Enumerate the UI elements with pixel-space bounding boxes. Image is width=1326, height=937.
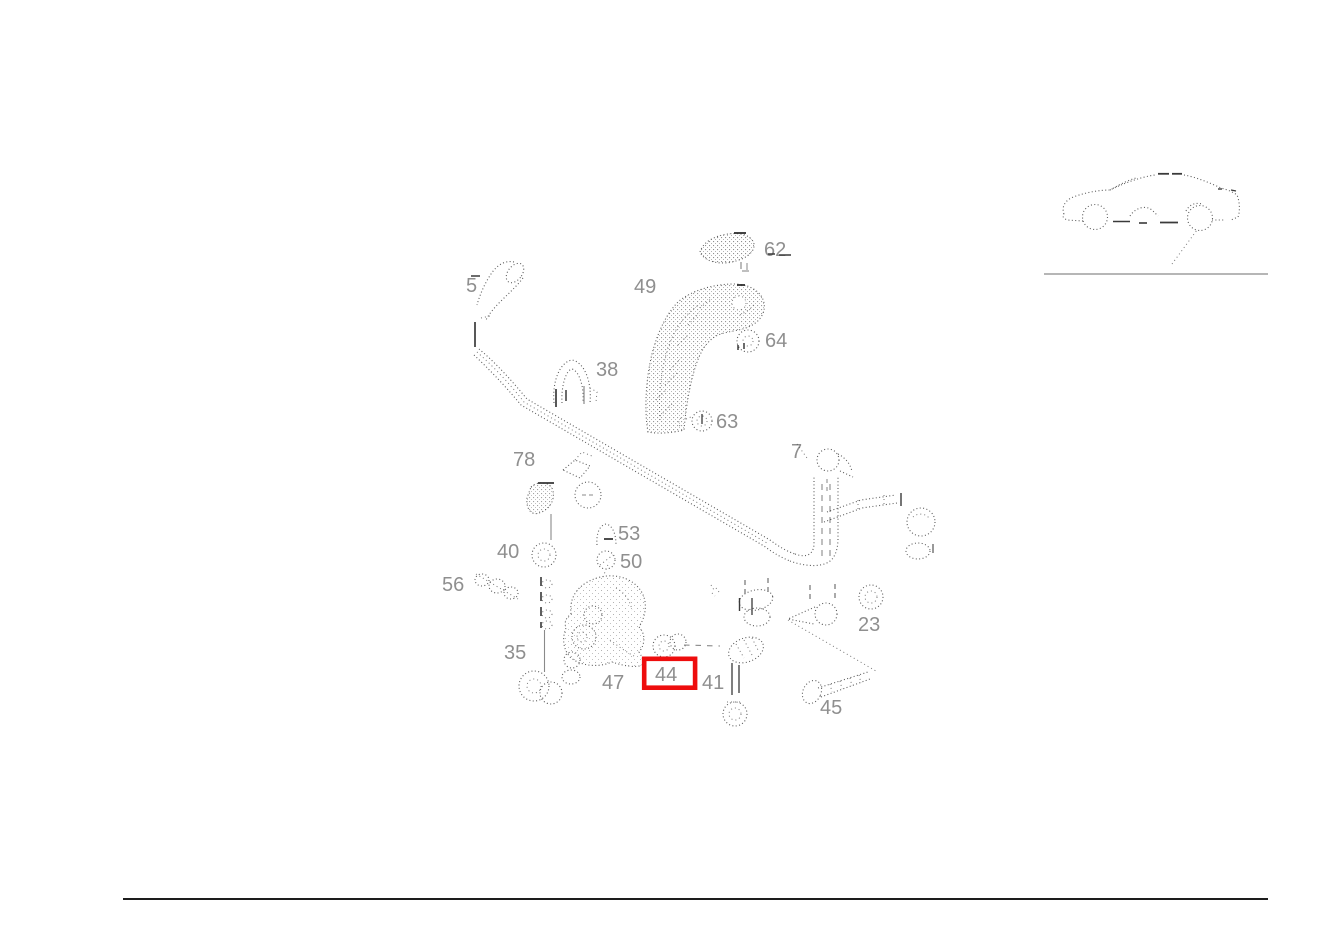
svg-text:78: 78 (513, 449, 535, 471)
svg-text:50: 50 (620, 551, 642, 573)
svg-text:44: 44 (655, 664, 677, 686)
svg-text:56: 56 (442, 574, 464, 596)
svg-text:23: 23 (858, 614, 880, 636)
svg-text:45: 45 (820, 697, 842, 719)
svg-text:38: 38 (596, 359, 618, 381)
svg-text:49: 49 (634, 276, 656, 298)
svg-text:5: 5 (466, 275, 477, 297)
svg-text:63: 63 (716, 411, 738, 433)
svg-text:47: 47 (602, 672, 624, 694)
svg-text:7: 7 (791, 441, 802, 463)
svg-text:41: 41 (702, 672, 724, 694)
svg-text:40: 40 (497, 541, 519, 563)
svg-text:62: 62 (764, 239, 786, 261)
svg-text:53: 53 (618, 523, 640, 545)
svg-text:64: 64 (765, 330, 787, 352)
svg-text:35: 35 (504, 642, 526, 664)
